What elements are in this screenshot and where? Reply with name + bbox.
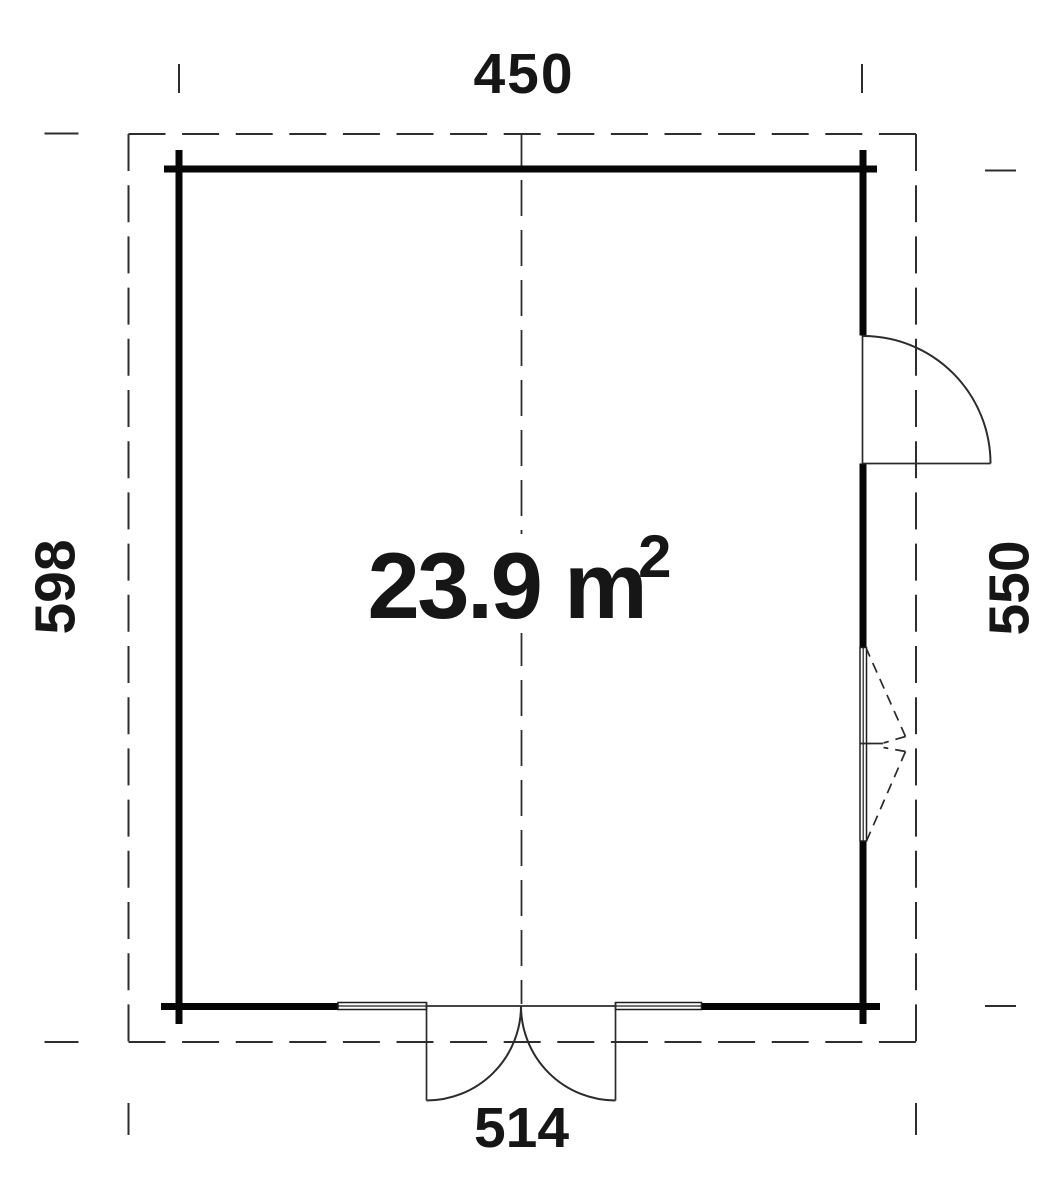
svg-text:23.9 m2: 23.9 m2 bbox=[368, 523, 670, 638]
svg-text:514: 514 bbox=[474, 1096, 569, 1160]
svg-text:550: 550 bbox=[978, 540, 1042, 635]
svg-text:598: 598 bbox=[24, 539, 88, 634]
svg-text:450: 450 bbox=[473, 42, 574, 106]
